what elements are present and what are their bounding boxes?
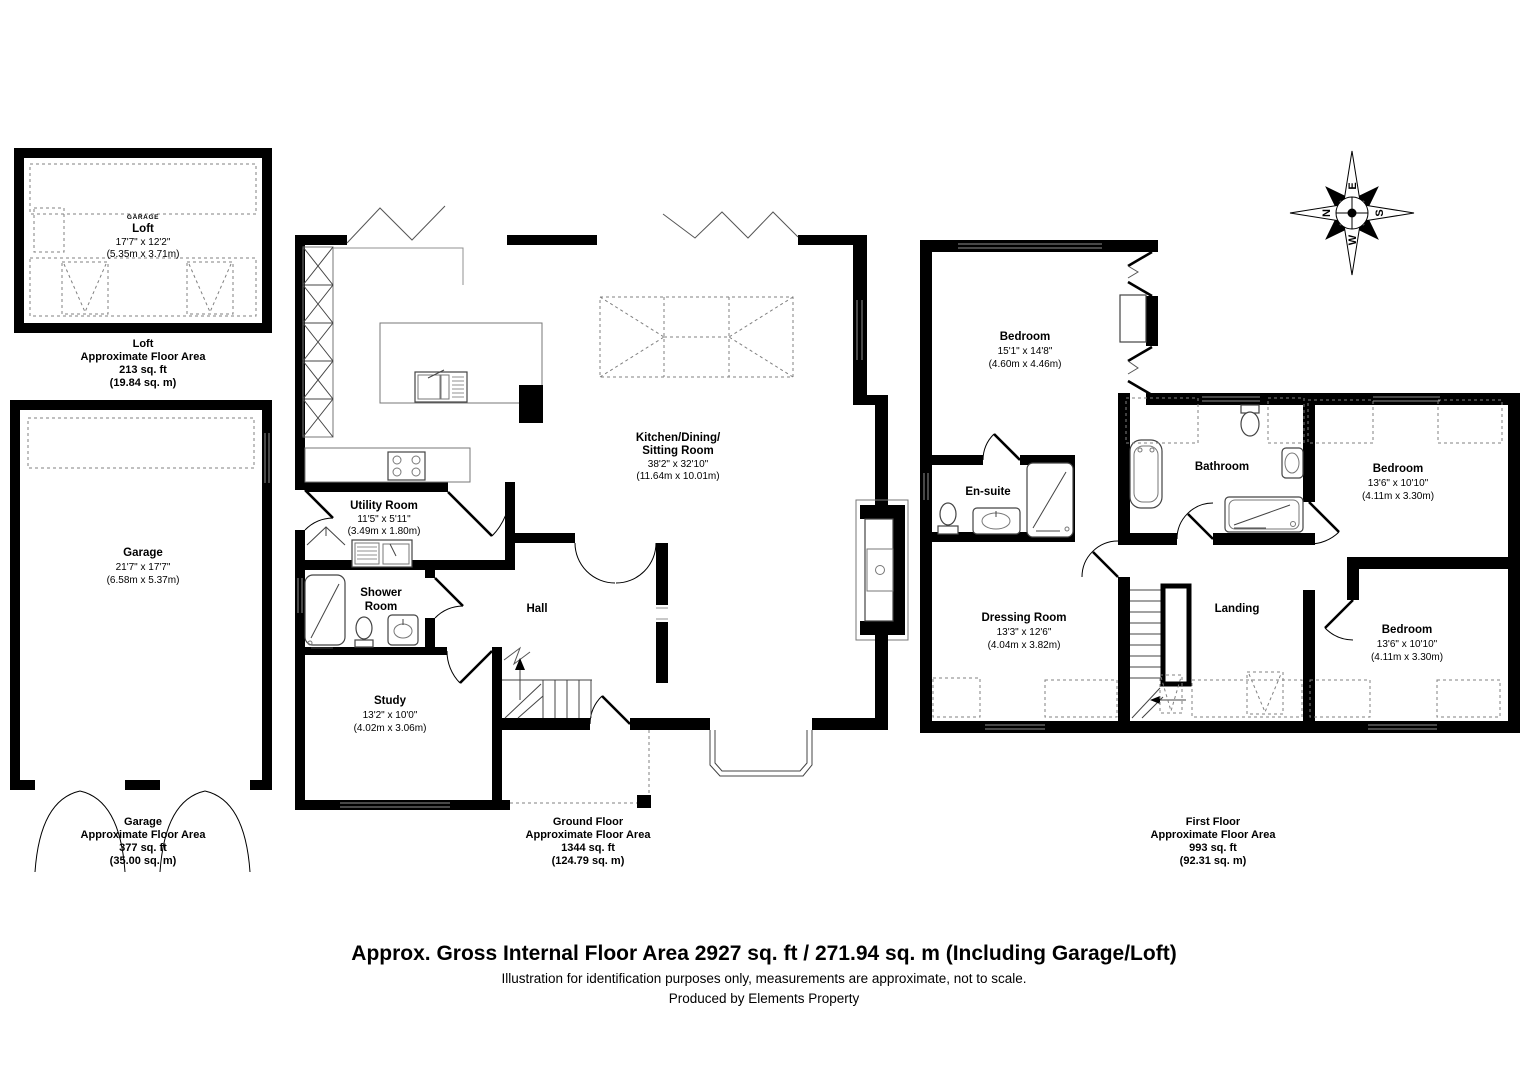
ground-caption-line2: Approximate Floor Area [526,829,652,841]
dressing-door [1082,541,1118,577]
loft-caption-line3: 213 sq. ft [119,364,167,376]
tall-kitchen-unit [303,247,333,437]
study-dims-ft: 13'2" x 10'0" [363,710,418,721]
shower-name-line1: Shower [360,587,402,599]
compass-letter-e: E [1347,182,1359,189]
kitchen-name-line1: Kitchen/Dining/ [636,432,721,444]
bedroom1-dormer-top [1128,252,1152,296]
compass-rose: N E S W [1290,151,1414,275]
wall-break-line-right [663,212,798,238]
bedroom3-dims-m: (4.11m x 3.30m) [1371,652,1443,663]
stove-bay [856,500,908,640]
bedroom3-eaves-right [1437,680,1500,717]
dressing-storage-left [933,678,980,717]
ensuite-basin [973,508,1020,534]
garage-eaves [28,418,254,468]
kitchen-island [380,323,543,423]
loft-plan: GARAGE Loft 17'7" x 12'2" (5.35m x 3.71m… [14,148,272,389]
loft-name-label: Loft [132,223,154,235]
bedroom1-dims-ft: 15'1" x 14'8" [998,346,1053,357]
ensuite-window [920,473,932,500]
bedroom1-name-label: Bedroom [1000,331,1050,343]
bathroom-basin [1282,448,1303,478]
loft-hatch [34,208,64,252]
footer-disclaimer: Illustration for identification purposes… [501,971,1026,986]
bedroom2-eaves-left [1308,400,1373,443]
garage-dims-m: (6.58m x 5.37m) [107,575,180,586]
shower-room-toilet [355,617,373,647]
loft-truss-left [62,262,108,314]
bedroom3-door [1325,600,1353,640]
stairwell-void [1163,586,1189,684]
cooktop [388,452,425,480]
shower-tray [305,575,345,648]
bedroom2-eaves-right [1438,400,1502,443]
ground-floor-caption: Ground Floor Approximate Floor Area 1344… [526,816,652,867]
hall-double-doors [575,543,656,583]
loft-truss-right [187,262,233,314]
ground-floor-stairs [502,648,592,718]
ensuite-door [983,434,1020,460]
loft-dims-ft: 17'7" x 12'2" [116,237,171,248]
bedroom2-name-label: Bedroom [1373,463,1423,475]
bathroom-toilet [1241,405,1259,436]
footer: Approx. Gross Internal Floor Area 2927 s… [351,942,1176,1006]
bedroom1-dormer-bottom [1128,347,1152,395]
footer-producer: Produced by Elements Property [669,991,860,1006]
loft-caption-line4: (19.84 sq. m) [110,377,177,389]
study-dims-m: (4.02m x 3.06m) [354,723,427,734]
dressing-dims-m: (4.04m x 3.82m) [988,640,1061,651]
bathroom-name-label: Bathroom [1195,461,1249,473]
bedroom3-name-label: Bedroom [1382,624,1432,636]
utility-kitchen-door [448,492,510,536]
floorplan-svg: GARAGE Loft 17'7" x 12'2" (5.35m x 3.71m… [0,0,1528,1080]
roof-lantern [600,297,793,377]
first-caption-line3: 993 sq. ft [1189,842,1237,854]
loft-eaves-bottom [30,258,256,316]
kitchen-name-line2: Sitting Room [642,445,714,457]
hall-screen-window [656,608,668,619]
bathroom-door [1177,503,1213,539]
dressing-window [985,721,1045,733]
garage-dims-ft: 21'7" x 17'7" [116,562,171,573]
ground-caption-line4: (124.79 sq. m) [552,855,625,867]
ground-caption-line1: Ground Floor [553,816,624,828]
ground-floor-plan: Kitchen/Dining/ Sitting Room 38'2" x 32'… [295,206,908,867]
garage-plan: Garage 21'7" x 17'7" (6.58m x 5.37m) Gar… [10,400,272,872]
bathroom-window [1202,393,1260,405]
dressing-name-label: Dressing Room [982,612,1067,624]
utility-dims-ft: 11'5" x 5'11" [357,514,411,525]
wall-break-line-left [347,206,445,243]
study-door [447,651,492,683]
shower-name-line2: Room [365,601,398,613]
bedroom3-window [1368,721,1437,733]
cupboard-bifold-doors [307,527,345,545]
loft-tag-label: GARAGE [127,214,159,221]
compass-letter-s: S [1374,209,1386,216]
loft-eaves-top [30,164,256,214]
first-floor-stairs [1130,586,1189,718]
compass-letter-n: N [1321,209,1333,217]
shower-room-window [295,578,305,613]
study-window [340,800,450,810]
compass-center-dot [1348,209,1357,218]
bay-window [710,730,812,776]
shower-room-door [435,578,463,618]
kitchen-dims-m: (11.64m x 10.01m) [636,471,719,482]
kitchen-window [853,300,867,360]
loft-dims-m: (5.35m x 3.71m) [107,249,180,260]
ensuite-name-label: En-suite [965,486,1010,498]
ensuite-shower [1027,463,1073,537]
bedroom2-dims-ft: 13'6" x 10'10" [1368,478,1429,489]
utility-name-label: Utility Room [350,500,418,512]
kitchen-dims-ft: 38'2" x 32'10" [648,459,709,470]
garage-caption: Garage Approximate Floor Area 377 sq. ft… [81,816,207,867]
compass-letter-w: W [1347,234,1359,245]
bedroom2-window [1373,393,1440,405]
hall-name-label: Hall [526,603,547,615]
first-caption-line2: Approximate Floor Area [1151,829,1277,841]
floorplan-page: GARAGE Loft 17'7" x 12'2" (5.35m x 3.71m… [0,0,1528,1080]
garage-caption-line1: Garage [124,816,162,828]
first-floor-caption: First Floor Approximate Floor Area 993 s… [1151,816,1277,867]
garage-window [262,433,272,483]
bath [1130,440,1162,508]
kitchen-counter-line [333,248,463,285]
bedroom2-dims-m: (4.11m x 3.30m) [1362,491,1434,502]
loft-caption: Loft Approximate Floor Area 213 sq. ft (… [81,338,207,389]
bedroom1-dims-m: (4.60m x 4.46m) [989,359,1062,370]
study-name-label: Study [374,695,407,707]
dressing-dims-ft: 13'3" x 12'6" [997,627,1052,638]
landing-truss [1247,672,1283,714]
bedroom1-chimney-box [1120,295,1146,342]
bathroom-shower [1225,497,1303,532]
front-door [590,696,630,724]
utility-sink-unit [352,540,412,567]
first-caption-line1: First Floor [1186,816,1241,828]
landing-name-label: Landing [1215,603,1260,615]
stairs-up-arrow [515,658,525,670]
bedroom1-window [958,240,1102,252]
garage-name-label: Garage [123,547,163,559]
shower-room-basin [388,615,418,645]
footer-title: Approx. Gross Internal Floor Area 2927 s… [351,942,1176,965]
ground-caption-line3: 1344 sq. ft [561,842,615,854]
ensuite-toilet [938,503,958,534]
bedroom3-eaves-left [1310,680,1370,717]
garage-caption-line2: Approximate Floor Area [81,829,207,841]
bedroom3-dims-ft: 13'6" x 10'10" [1377,639,1438,650]
utility-dims-m: (3.49m x 1.80m) [348,526,421,537]
loft-caption-line1: Loft [133,338,154,350]
garage-caption-line3: 377 sq. ft [119,842,167,854]
first-floor-plan: Bedroom 15'1" x 14'8" (4.60m x 4.46m) En… [920,240,1520,867]
porch-outline [510,730,651,808]
dressing-storage-right [1045,680,1117,717]
loft-caption-line2: Approximate Floor Area [81,351,207,363]
garage-caption-line4: (35.00 sq. m) [110,855,177,867]
first-caption-line4: (92.31 sq. m) [1180,855,1247,867]
utility-side-door [305,490,333,530]
